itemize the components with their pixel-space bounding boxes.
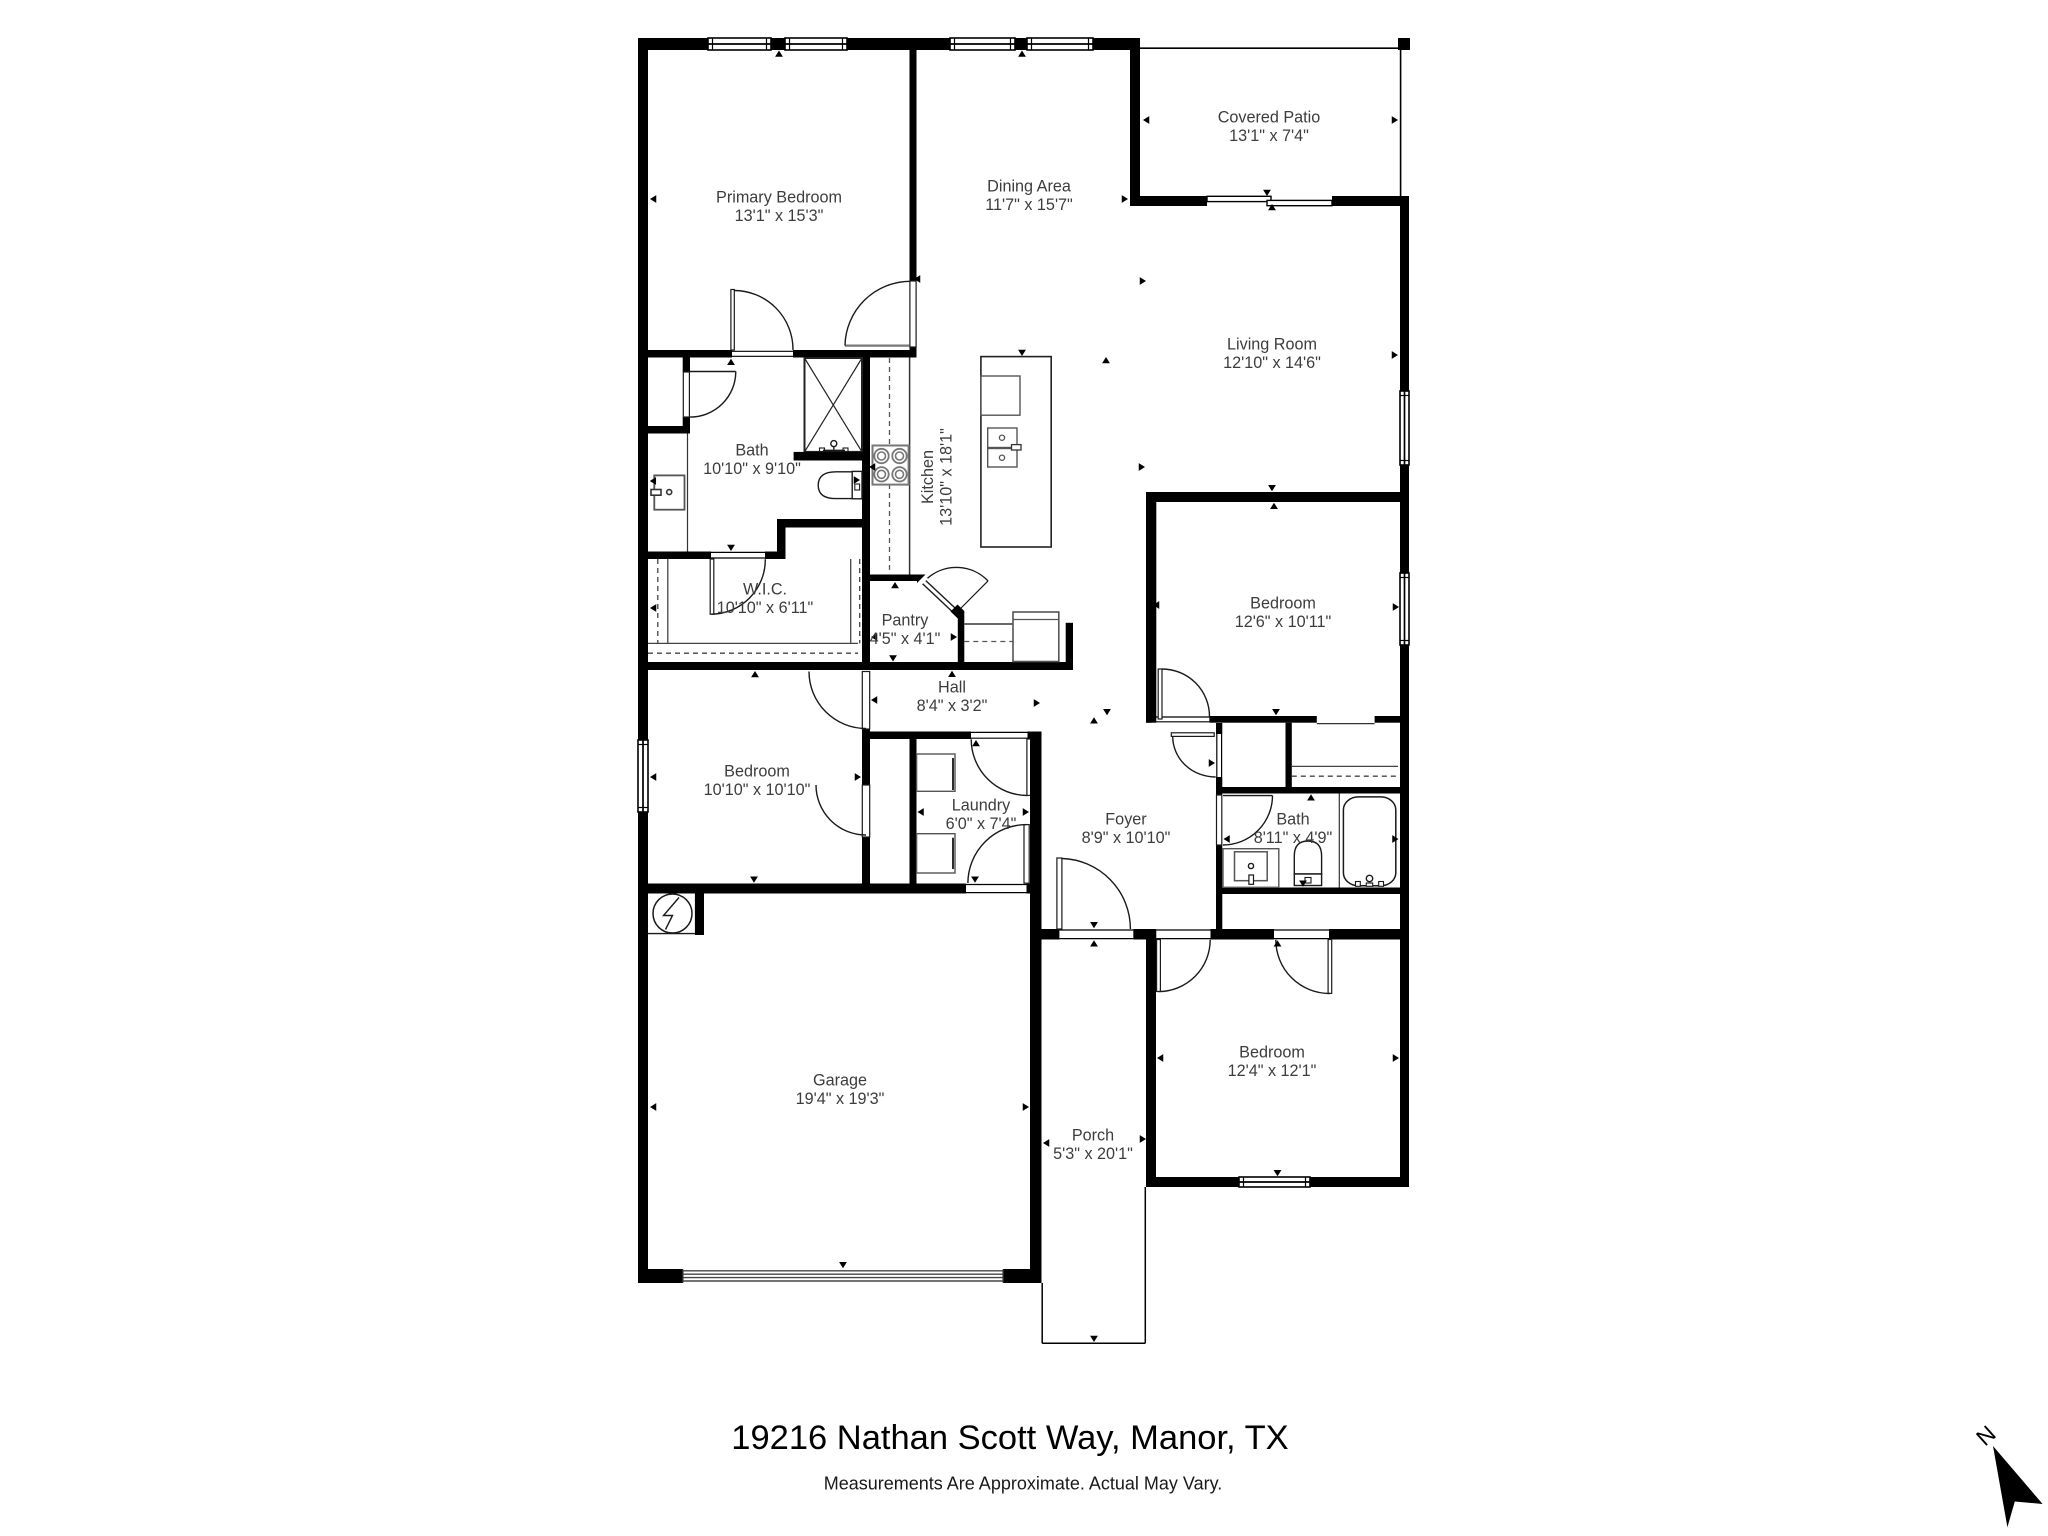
svg-text:Bedroom12'4" x 12'1": Bedroom12'4" x 12'1" [1228,1043,1317,1080]
svg-text:Dining Area11'7" x 15'7": Dining Area11'7" x 15'7" [985,177,1073,214]
svg-text:Primary Bedroom13'1" x 15'3": Primary Bedroom13'1" x 15'3" [716,188,842,225]
svg-text:Laundry6'0" x 7'4": Laundry6'0" x 7'4" [946,796,1017,833]
svg-text:Measurements Are Approximate.: Measurements Are Approximate. Actual May… [824,1474,1223,1494]
svg-text:Covered Patio13'1" x 7'4": Covered Patio13'1" x 7'4" [1218,108,1321,145]
svg-text:19216 Nathan Scott Way, Manor,: 19216 Nathan Scott Way, Manor, TX [731,1419,1288,1457]
svg-text:Living Room12'10" x 14'6": Living Room12'10" x 14'6" [1223,335,1321,372]
